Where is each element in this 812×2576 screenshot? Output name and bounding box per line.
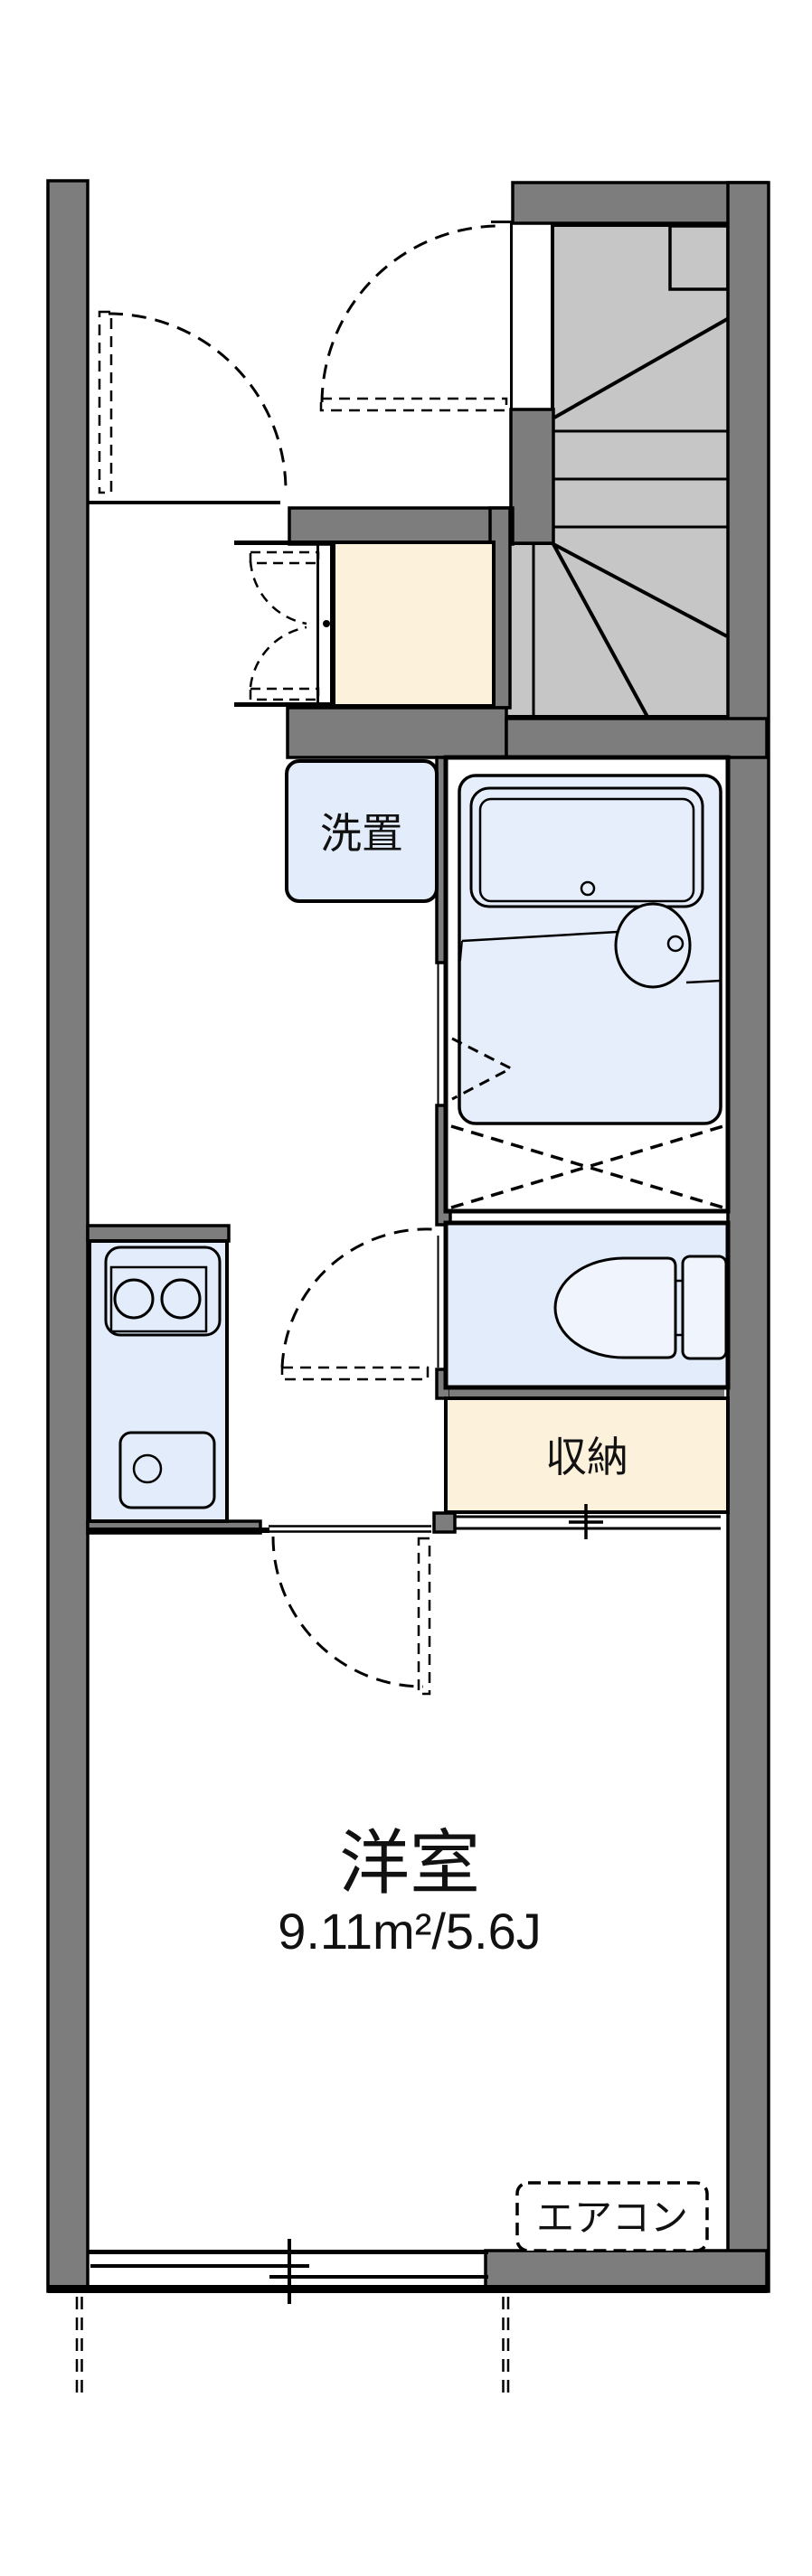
room-door-leaf (419, 1538, 430, 1694)
stair-area-upper (552, 226, 729, 719)
washer-space-label: 洗置 (320, 810, 403, 857)
under-stair-wall (506, 719, 767, 757)
toilet-room (282, 1223, 728, 1387)
lower-floor-door-leaf (99, 312, 111, 493)
toilet-tank (683, 1256, 726, 1359)
entrance-door-rail-bottom (234, 702, 335, 707)
entrance-door-latch (323, 620, 330, 627)
outer-wall-left (48, 181, 88, 2291)
floor-plan-page: 洗置 収納 (0, 0, 812, 2576)
western-room-label: 洋室 (339, 1823, 480, 1903)
entrance-door-post (316, 545, 319, 702)
window-pane-line (90, 2264, 309, 2268)
door-swing-arc (250, 627, 307, 687)
stair-landing-border (510, 223, 513, 409)
toilet-door-leaf (282, 1368, 428, 1379)
entrance-door-post (330, 545, 333, 702)
dashed-doors-upper (99, 226, 506, 493)
entrance-door-rail-top (234, 541, 335, 545)
storage-label: 収納 (545, 1434, 628, 1481)
aircon-label: エアコン (536, 2196, 688, 2239)
western-room-area-label: 9.11m²/5.6J (278, 1903, 542, 1960)
room-top-wall-line (88, 1528, 269, 1533)
kitchen (90, 1241, 227, 1521)
stair-landing-head-line (491, 221, 513, 223)
unit-door-swing-arc (322, 226, 497, 402)
entrance-step-line (88, 501, 280, 504)
kitchen-top-strip (88, 1226, 229, 1241)
stair-side-wall (511, 409, 553, 543)
western-room: 洋室 9.11m²/5.6J エアコン (88, 1527, 707, 2305)
entrance-double-door-leaf (250, 689, 318, 700)
lower-floor-door-swing-arc (109, 314, 286, 488)
toilet-bowl (555, 1258, 675, 1358)
floor-plan-drawing: 洗置 収納 (0, 0, 812, 2576)
hall-band-wall (288, 708, 506, 757)
bathroom (439, 757, 729, 1211)
window-center-tick (288, 2239, 291, 2304)
entrance-floor (334, 542, 494, 706)
closet-door-nub (434, 1513, 455, 1532)
toilet-door-swing-arc (282, 1229, 432, 1368)
wash-basin (616, 904, 690, 987)
unit-door-leaf (321, 399, 506, 410)
bottom-edge-line (48, 2285, 767, 2293)
washer-space: 洗置 (287, 761, 437, 901)
entrance-double-door-leaf (250, 552, 318, 563)
door-swing-arc (250, 561, 307, 624)
entrance-top-wall (289, 508, 513, 544)
outer-wall-right (728, 183, 769, 2291)
lower-dashed-stubs (77, 2297, 508, 2395)
room-door-swing-arc (273, 1537, 423, 1687)
window-pane-line (269, 2275, 488, 2279)
storage-closet: 収納 (446, 1398, 728, 1539)
